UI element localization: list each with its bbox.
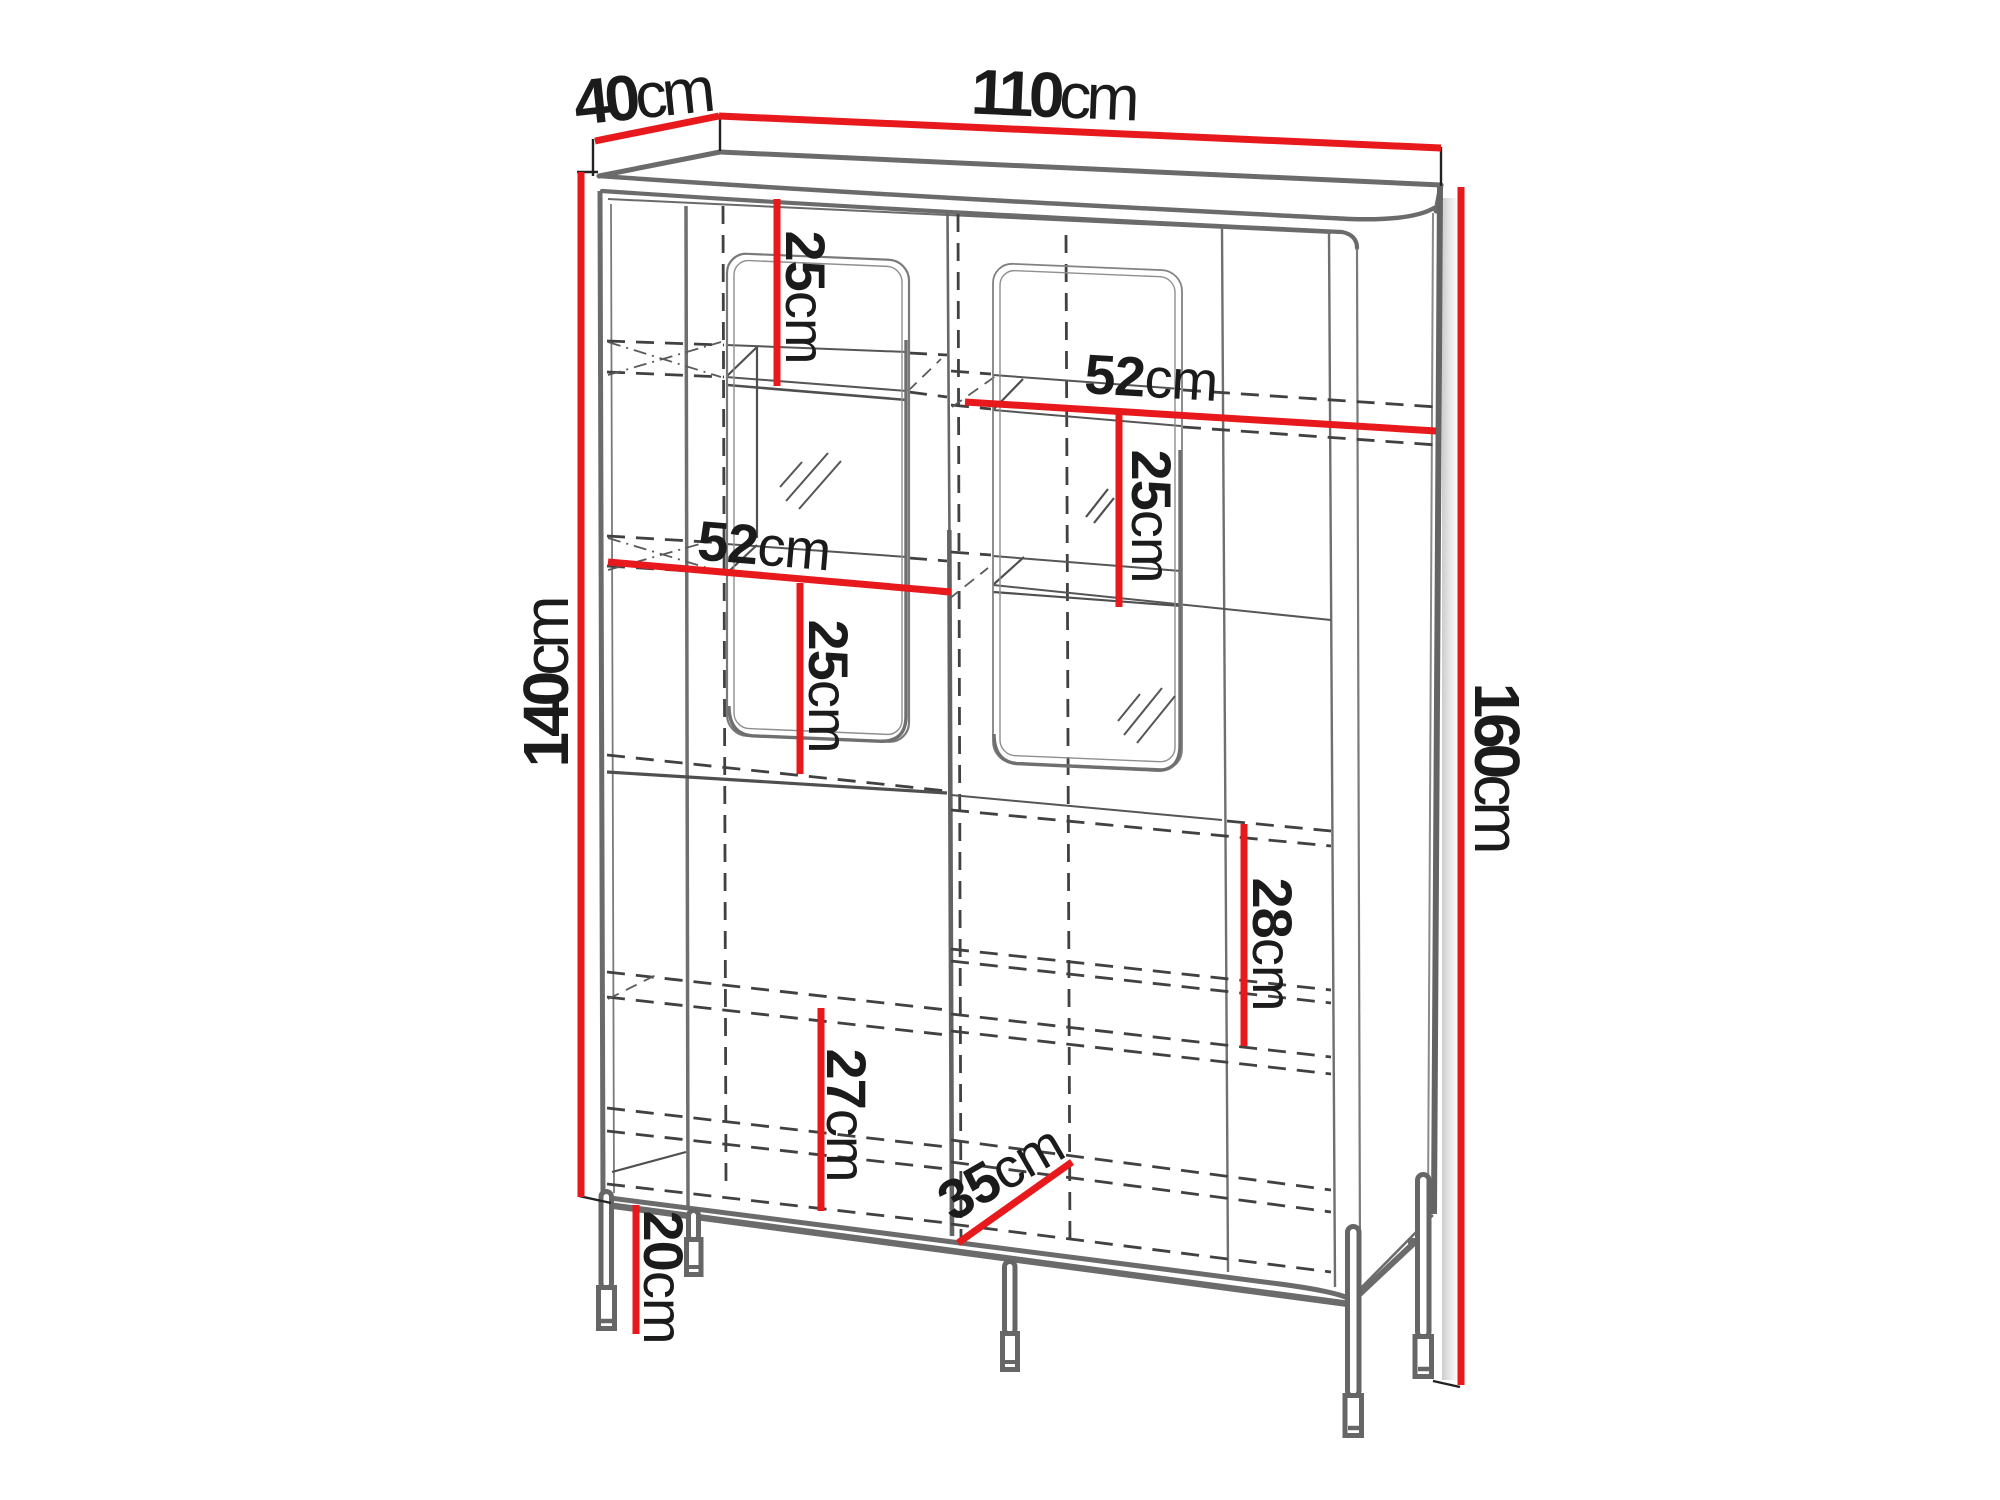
svg-text:160cm: 160cm — [1461, 682, 1533, 851]
svg-text:25cm: 25cm — [774, 231, 837, 364]
svg-text:28cm: 28cm — [1241, 878, 1304, 1011]
svg-text:52cm: 52cm — [1083, 342, 1219, 413]
svg-text:27cm: 27cm — [815, 1049, 878, 1182]
svg-text:40cm: 40cm — [570, 53, 715, 139]
svg-text:20cm: 20cm — [632, 1211, 695, 1344]
svg-text:25cm: 25cm — [797, 620, 860, 753]
svg-text:52cm: 52cm — [695, 509, 833, 583]
svg-text:110cm: 110cm — [970, 56, 1138, 135]
svg-text:25cm: 25cm — [1120, 450, 1183, 583]
svg-text:140cm: 140cm — [510, 599, 582, 768]
